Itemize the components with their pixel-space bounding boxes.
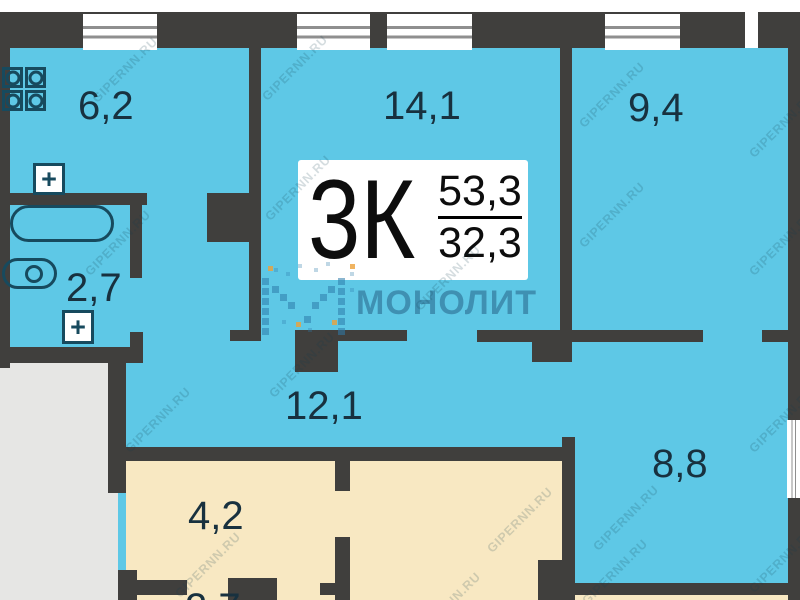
living-area-value: 32,3 (438, 220, 522, 267)
monolit-brand-text: МОНОЛИТ (356, 284, 537, 323)
window-icon (605, 14, 680, 50)
wall-bottom-left (118, 570, 137, 600)
floor-plan: + + 6,2 14,1 9,4 2,7 12,1 8,8 4,2 2,7 3К… (0, 0, 800, 600)
wall-left (0, 12, 10, 368)
wall-livingroom-bedroom (560, 48, 572, 341)
room-label-bedroom9: 9,4 (628, 88, 684, 128)
plus-vent-box-icon: + (33, 163, 65, 195)
toilet-bowl-icon (25, 265, 43, 283)
burner-icon (25, 67, 46, 88)
stove-4-burner-icon (2, 67, 46, 111)
wall-section-gap (745, 12, 758, 48)
window-icon (787, 420, 800, 498)
wall-bath-bottom (0, 347, 143, 363)
plus-vent-box-icon: + (62, 310, 94, 344)
wall-corridor-door-stub (320, 583, 335, 595)
wall-bedroom9-bottom-b (762, 330, 788, 342)
room-label-lower-unit: 2,7 (185, 588, 241, 600)
wall-bedroom9-bottom-a (572, 330, 703, 342)
burner-icon (25, 90, 46, 111)
room-label-bedroom8: 8,8 (652, 444, 708, 484)
room-label-living: 14,1 (383, 86, 461, 126)
wall-shaft-divider (108, 363, 126, 493)
toilet-icon (2, 258, 57, 289)
bathtub-icon (10, 205, 114, 242)
wall-corridor-divider-upper (335, 461, 350, 491)
stair-shaft-fill (0, 363, 118, 600)
wall-livingroom-door-jamb (230, 330, 249, 341)
burner-icon (2, 67, 23, 88)
monolit-logo-icon (262, 258, 362, 336)
room-label-hallway: 12,1 (285, 386, 363, 426)
wall-hall-stub (532, 341, 572, 362)
wall-kitchen-bottom (0, 193, 147, 205)
wall-hall-bottom (120, 447, 575, 461)
wall-corridor-divider-lower (335, 537, 350, 600)
burner-icon (2, 90, 23, 111)
apartment-type-label: 3К (308, 171, 415, 270)
window-icon (387, 14, 472, 50)
total-area-value: 53,3 (438, 168, 522, 215)
room-label-corridor: 4,2 (188, 496, 244, 536)
